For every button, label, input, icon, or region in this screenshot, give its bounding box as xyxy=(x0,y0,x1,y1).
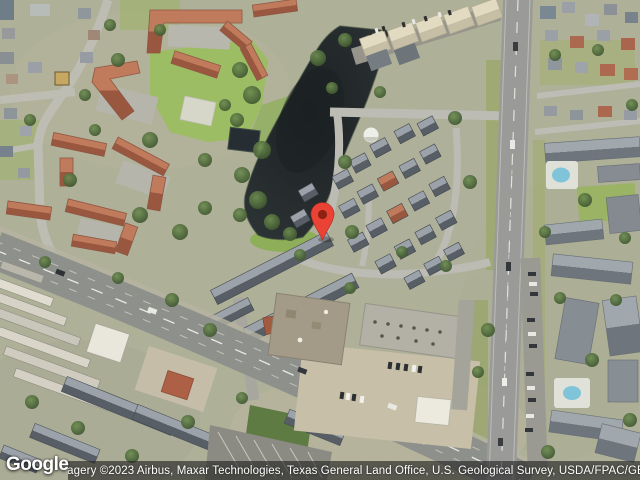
map-viewport[interactable]: Google Imagery ©2023 Airbus, Maxar Techn… xyxy=(0,0,640,480)
satellite-imagery[interactable] xyxy=(0,0,640,480)
attribution-bar: Imagery ©2023 Airbus, Maxar Technologies… xyxy=(68,461,640,480)
google-logo[interactable]: Google xyxy=(6,454,68,476)
pin-inner-dot xyxy=(318,210,327,219)
attribution-text: Imagery ©2023 Airbus, Maxar Technologies… xyxy=(68,465,640,477)
